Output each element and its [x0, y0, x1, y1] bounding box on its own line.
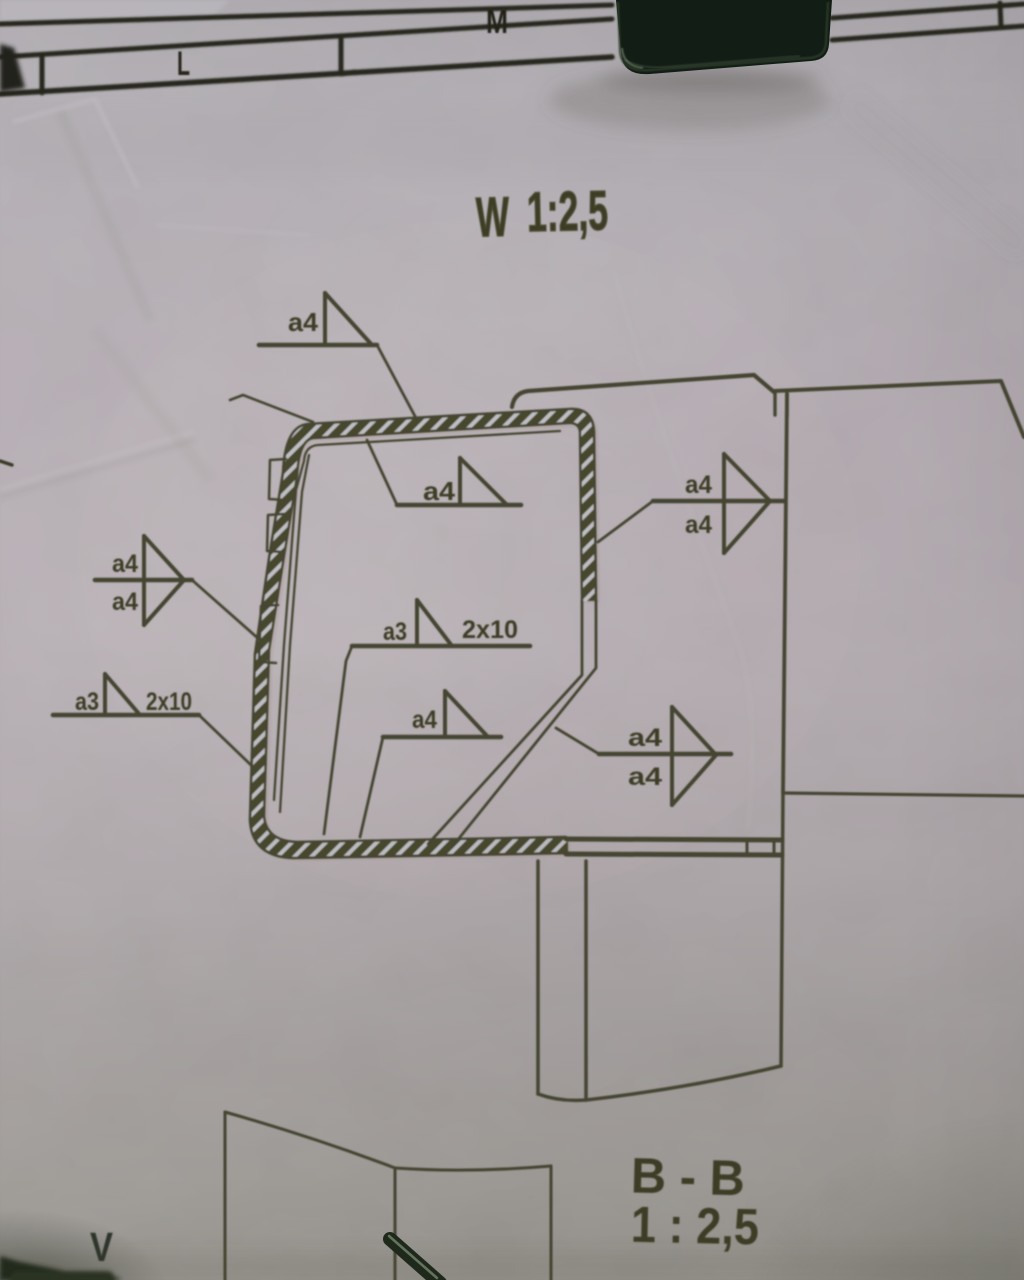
- svg-text:W: W: [475, 185, 510, 249]
- svg-text:2x10: 2x10: [146, 688, 192, 716]
- svg-text:M: M: [486, 3, 508, 41]
- svg-text:a4: a4: [112, 588, 138, 616]
- svg-text:2x10: 2x10: [462, 616, 518, 644]
- svg-text:1 : 2,5: 1 : 2,5: [630, 1196, 759, 1256]
- svg-text:a4: a4: [628, 724, 662, 752]
- svg-text:a3: a3: [383, 618, 407, 646]
- svg-text:a4: a4: [112, 550, 138, 578]
- svg-text:1:2,5: 1:2,5: [526, 178, 608, 243]
- svg-text:a4: a4: [288, 307, 319, 337]
- svg-text:a4: a4: [685, 471, 712, 499]
- svg-text:L: L: [177, 45, 190, 83]
- svg-text:a4: a4: [423, 476, 456, 506]
- svg-text:V: V: [90, 1224, 114, 1270]
- svg-text:a4: a4: [628, 763, 662, 791]
- svg-text:a4: a4: [412, 706, 437, 734]
- svg-text:a4: a4: [685, 511, 712, 539]
- svg-text:a3: a3: [75, 688, 99, 716]
